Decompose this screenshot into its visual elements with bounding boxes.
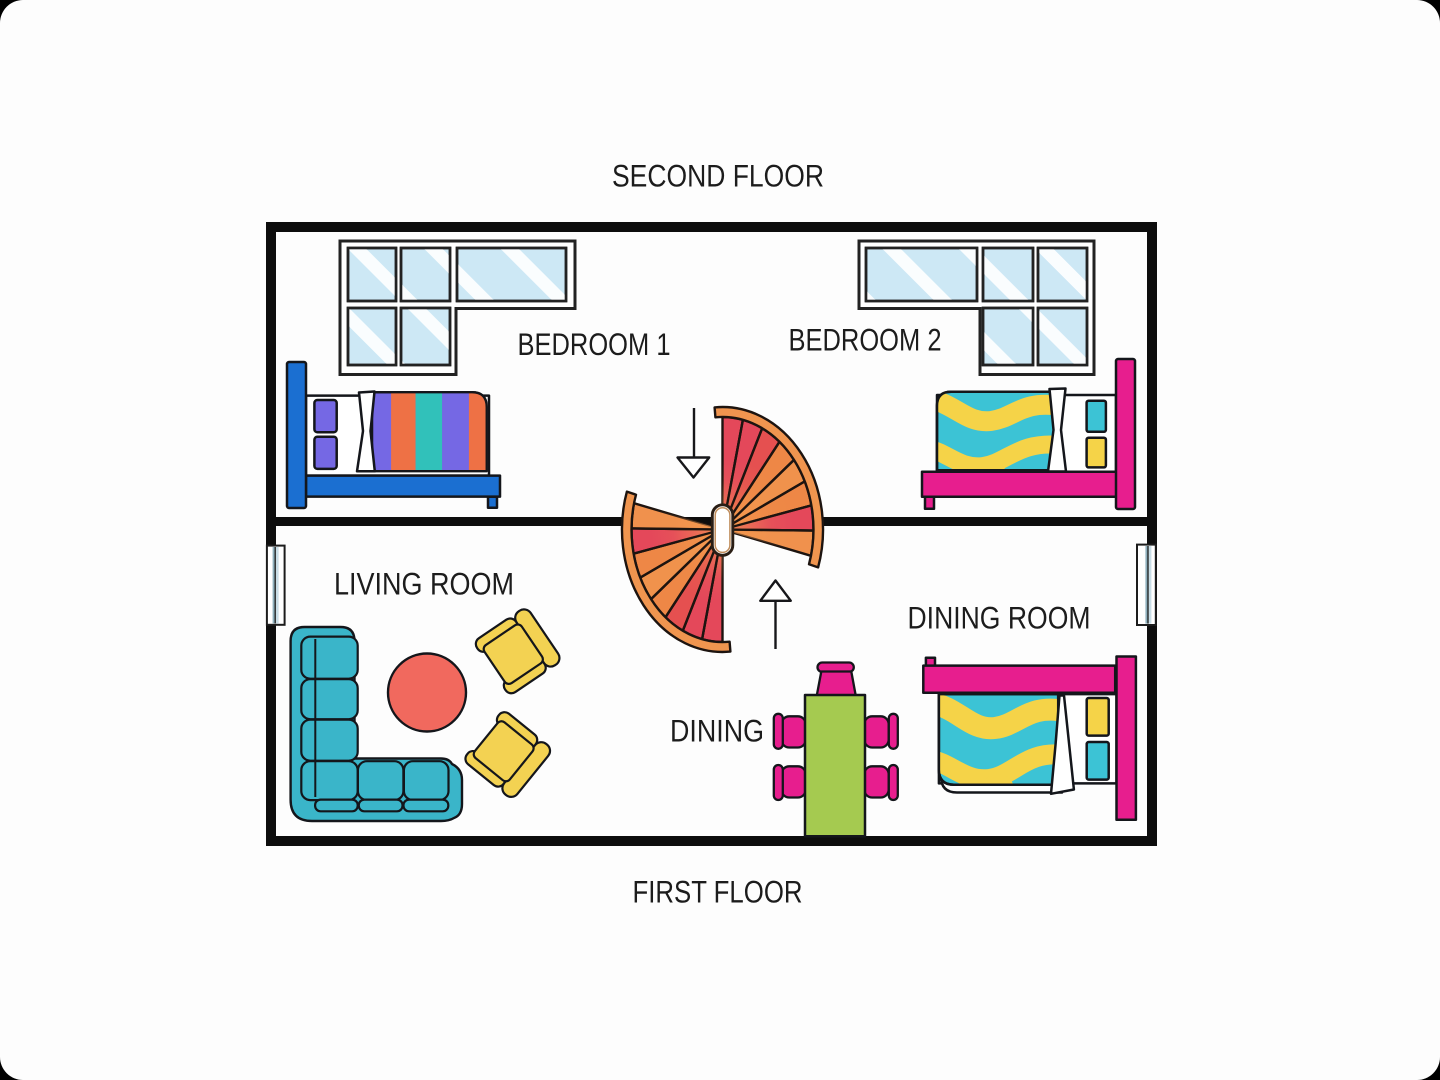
svg-text:FIRST FLOOR: FIRST FLOOR [633,875,803,910]
svg-text:SECOND FLOOR: SECOND FLOOR [612,159,824,194]
svg-text:DINING ROOM: DINING ROOM [908,601,1091,636]
svg-text:BEDROOM 1: BEDROOM 1 [518,327,671,362]
svg-text:BEDROOM 2: BEDROOM 2 [789,323,942,358]
svg-text:DINING: DINING [670,714,764,749]
svg-text:LIVING ROOM: LIVING ROOM [334,567,514,602]
